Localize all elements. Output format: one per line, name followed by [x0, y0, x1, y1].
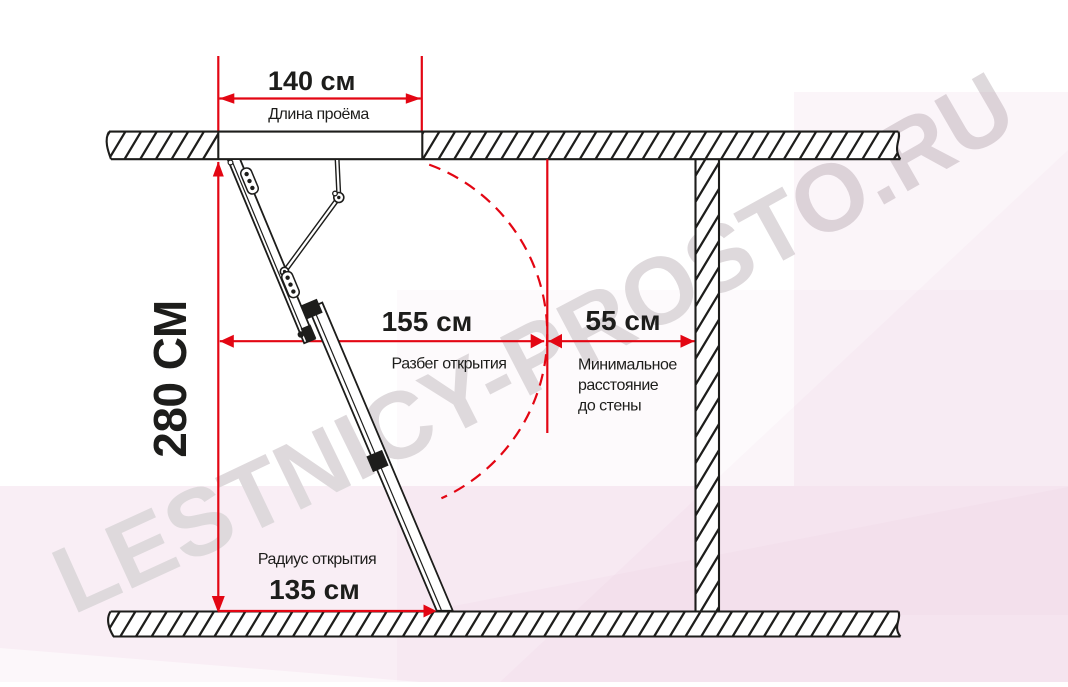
- svg-text:280 СМ: 280 СМ: [144, 300, 196, 457]
- svg-text:расстояние: расстояние: [578, 377, 659, 394]
- svg-text:до стены: до стены: [578, 398, 641, 415]
- svg-text:135 см: 135 см: [269, 574, 360, 605]
- svg-text:Разбег открытия: Разбег открытия: [392, 356, 507, 373]
- svg-text:55 см: 55 см: [585, 305, 660, 336]
- svg-text:140 см: 140 см: [268, 66, 356, 96]
- svg-text:155 см: 155 см: [382, 306, 473, 337]
- svg-text:Длина проёма: Длина проёма: [268, 106, 369, 123]
- svg-text:Радиус открытия: Радиус открытия: [258, 551, 376, 568]
- svg-text:Минимальное: Минимальное: [578, 357, 677, 374]
